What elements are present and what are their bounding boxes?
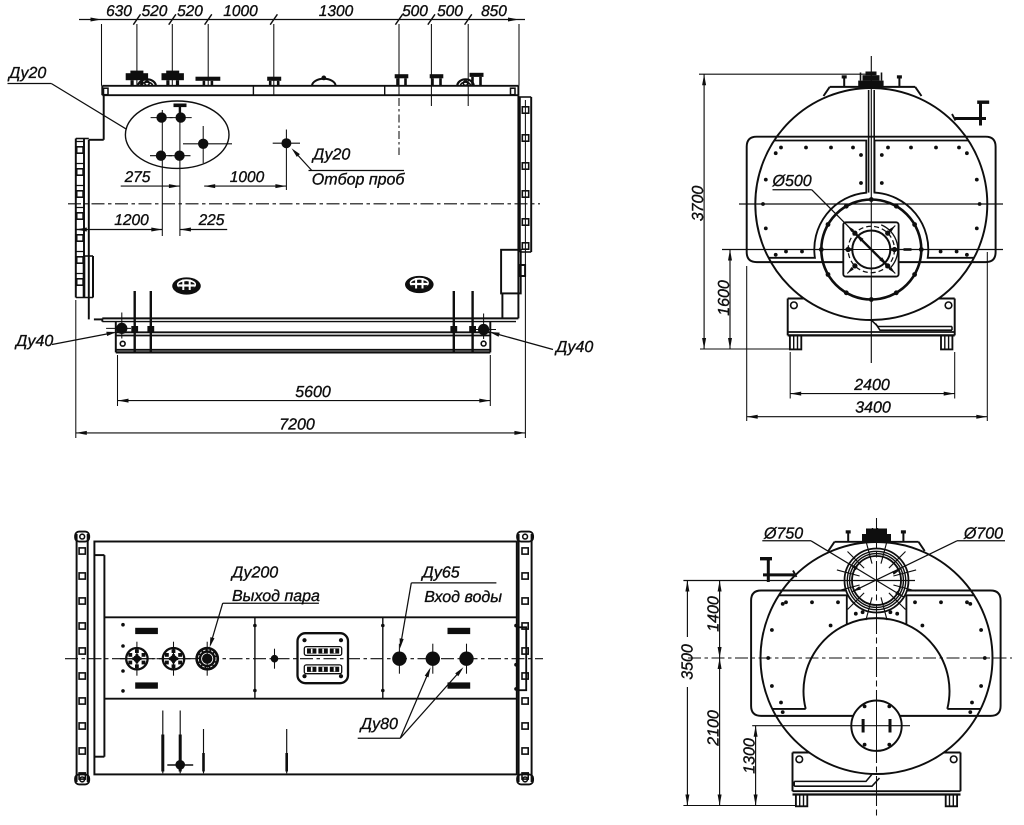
svg-text:3700: 3700: [690, 186, 707, 222]
svg-text:520: 520: [142, 3, 168, 20]
svg-text:500: 500: [402, 3, 428, 20]
svg-text:Ø500: Ø500: [772, 173, 812, 190]
svg-text:Ду20: Ду20: [7, 65, 46, 82]
svg-text:1200: 1200: [114, 212, 149, 229]
svg-text:1000: 1000: [223, 3, 258, 20]
svg-text:630: 630: [106, 3, 132, 20]
svg-text:1300: 1300: [319, 3, 354, 20]
svg-text:850: 850: [481, 3, 507, 20]
svg-text:3500: 3500: [680, 644, 697, 680]
svg-text:520: 520: [177, 3, 203, 20]
svg-text:3400: 3400: [855, 400, 891, 417]
svg-text:Отбор проб: Отбор проб: [312, 172, 406, 189]
svg-text:500: 500: [437, 3, 463, 20]
svg-text:1400: 1400: [706, 596, 723, 632]
svg-text:Ду40: Ду40: [554, 339, 593, 356]
svg-text:Ду65: Ду65: [420, 564, 459, 581]
svg-text:Ø750: Ø750: [763, 526, 803, 543]
svg-text:Ду200: Ду200: [230, 564, 278, 581]
svg-text:Ду20: Ду20: [311, 147, 350, 164]
svg-text:2400: 2400: [853, 377, 890, 394]
svg-text:Вход воды: Вход воды: [424, 589, 502, 606]
svg-text:Ду80: Ду80: [359, 716, 398, 733]
svg-text:Ду40: Ду40: [14, 333, 53, 350]
svg-text:5600: 5600: [295, 384, 331, 401]
svg-text:1000: 1000: [230, 169, 265, 186]
svg-text:Ø700: Ø700: [963, 526, 1003, 543]
svg-text:1300: 1300: [742, 738, 759, 774]
svg-text:2100: 2100: [706, 710, 723, 747]
svg-text:275: 275: [124, 169, 151, 186]
svg-text:225: 225: [198, 212, 225, 229]
svg-text:1600: 1600: [716, 280, 733, 316]
svg-text:7200: 7200: [279, 417, 315, 434]
